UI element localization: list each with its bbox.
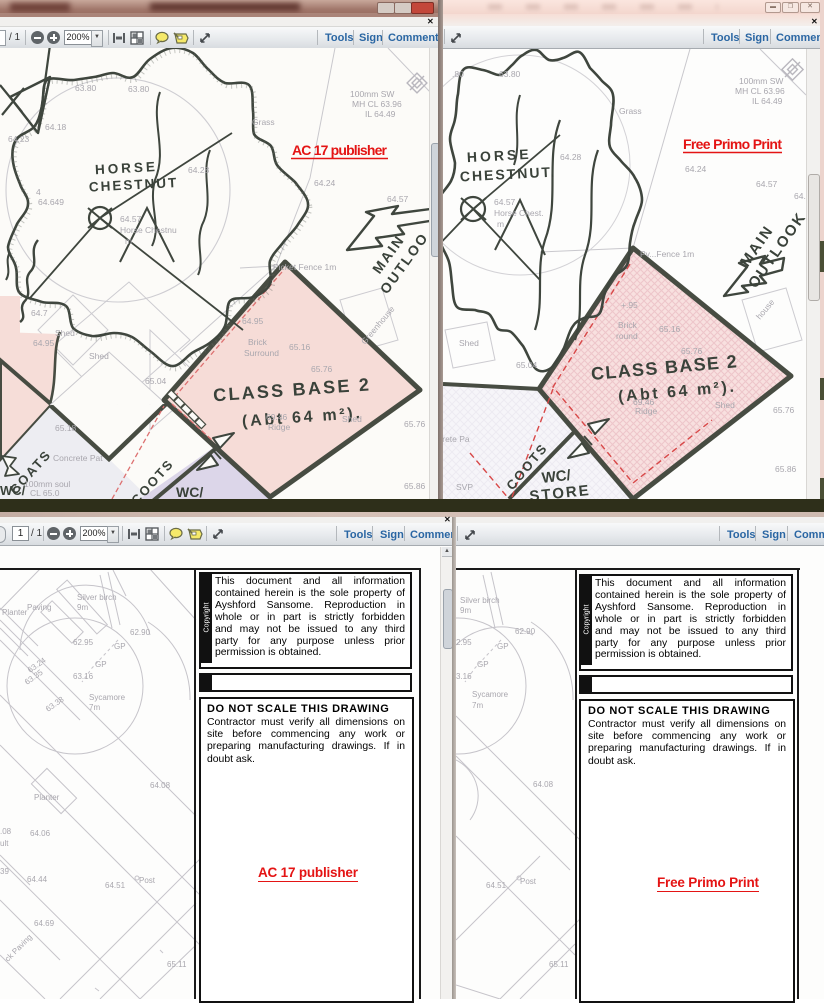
svg-text:65.18: 65.18	[55, 423, 77, 433]
svg-text:GP: GP	[477, 660, 489, 669]
svg-text:.80: .80	[452, 69, 464, 79]
svg-text:9m: 9m	[460, 606, 471, 615]
svg-text:+.95: +.95	[621, 300, 638, 310]
svg-text:GP: GP	[95, 660, 107, 669]
svg-text:WC/: WC/	[0, 483, 26, 498]
svg-text:65.04: 65.04	[516, 360, 538, 370]
svg-text:64.4: 64.4	[794, 191, 806, 201]
svg-text:64.57: 64.57	[756, 179, 778, 189]
svg-text:62.90: 62.90	[515, 627, 536, 636]
svg-text:Horse Chestnu: Horse Chestnu	[120, 225, 177, 235]
svg-text:64.51: 64.51	[486, 881, 507, 890]
svg-text:65.86: 65.86	[404, 481, 426, 491]
svg-text:64.28: 64.28	[560, 152, 582, 162]
svg-text:3.16: 3.16	[456, 672, 472, 681]
svg-text:MH CL 63.96: MH CL 63.96	[352, 99, 402, 109]
svg-text:65.76: 65.76	[404, 419, 426, 429]
svg-text:round: round	[616, 331, 638, 341]
svg-text:Brick: Brick	[618, 320, 638, 330]
svg-text:Sycamore: Sycamore	[89, 693, 126, 702]
svg-text:64.08: 64.08	[150, 781, 171, 790]
svg-text:Planter: Planter	[34, 793, 60, 802]
svg-text:GP: GP	[114, 642, 126, 651]
svg-text:7m: 7m	[472, 701, 483, 710]
svg-text:64.57: 64.57	[387, 194, 409, 204]
svg-text:100mm SW: 100mm SW	[739, 76, 783, 86]
svg-text:63.80: 63.80	[75, 83, 97, 93]
svg-text:Silver birch: Silver birch	[77, 593, 117, 602]
svg-text:64.44: 64.44	[27, 875, 48, 884]
svg-text:GP: GP	[497, 642, 509, 651]
svg-text:Pv...Fence 1m: Pv...Fence 1m	[640, 249, 694, 259]
svg-text:Surround: Surround	[244, 348, 279, 358]
svg-text:2.95: 2.95	[456, 638, 472, 647]
svg-text:64.18: 64.18	[45, 122, 67, 132]
svg-text:Shed: Shed	[55, 328, 75, 338]
svg-text:.08: .08	[0, 827, 12, 836]
svg-text:IL 64.49: IL 64.49	[365, 109, 396, 119]
svg-text:Ridge: Ridge	[268, 422, 290, 432]
svg-text:9m: 9m	[77, 603, 88, 612]
svg-text:100mm SW: 100mm SW	[350, 89, 394, 99]
svg-text:65.04: 65.04	[145, 376, 167, 386]
svg-text:65.16: 65.16	[289, 342, 311, 352]
svg-text:Planter: Planter	[2, 608, 28, 617]
svg-text:62.95: 62.95	[73, 638, 94, 647]
svg-text:MH CL 63.96: MH CL 63.96	[735, 86, 785, 96]
svg-text:64.57: 64.57	[494, 197, 516, 207]
svg-text:crete Pa: crete Pa	[443, 434, 470, 444]
svg-text:64.24: 64.24	[314, 178, 336, 188]
svg-text:64.649: 64.649	[38, 197, 64, 207]
svg-text:Paving: Paving	[27, 603, 51, 612]
svg-text:39: 39	[0, 867, 9, 876]
svg-text:ult: ult	[0, 839, 9, 848]
svg-text:Concrete Pat: Concrete Pat	[53, 453, 103, 463]
svg-text:63.80: 63.80	[128, 84, 150, 94]
svg-text:Sycamore: Sycamore	[472, 690, 509, 699]
svg-text:CL 65.0: CL 65.0	[30, 488, 60, 498]
svg-text:69.46: 69.46	[266, 412, 288, 422]
svg-text:64.69: 64.69	[34, 919, 55, 928]
svg-text:63.38: 63.38	[44, 694, 66, 713]
svg-text:64.95: 64.95	[33, 338, 55, 348]
svg-text:65.76: 65.76	[681, 346, 703, 356]
svg-text:4: 4	[36, 187, 41, 197]
svg-text:7m: 7m	[89, 703, 100, 712]
svg-text:64.7: 64.7	[31, 308, 48, 318]
svg-text:65.76: 65.76	[773, 405, 795, 415]
svg-text:65.16: 65.16	[659, 324, 681, 334]
svg-text:65.76: 65.76	[311, 364, 333, 374]
svg-text:SVP: SVP	[456, 482, 473, 492]
svg-text:m: m	[125, 236, 132, 246]
svg-text:64.23: 64.23	[8, 134, 30, 144]
svg-text:64.57: 64.57	[120, 214, 142, 224]
svg-text:AC 17 publisher: AC 17 publisher	[292, 142, 388, 158]
svg-text:Brick: Brick	[248, 337, 268, 347]
svg-text:64.08: 64.08	[533, 780, 554, 789]
svg-text:64.95: 64.95	[242, 316, 264, 326]
svg-text:Grass: Grass	[619, 106, 642, 116]
svg-text:63.16: 63.16	[73, 672, 94, 681]
svg-text:64.06: 64.06	[30, 829, 51, 838]
svg-text:64.51: 64.51	[105, 881, 126, 890]
svg-text:63.80: 63.80	[499, 69, 521, 79]
svg-text:64.28: 64.28	[188, 165, 210, 175]
svg-text:Shed: Shed	[89, 351, 109, 361]
svg-text:65.11: 65.11	[549, 960, 569, 969]
svg-text:Post: Post	[139, 876, 156, 885]
svg-text:Post: Post	[520, 877, 537, 886]
svg-text:ck Paving: ck Paving	[3, 933, 34, 964]
svg-text:WC/: WC/	[176, 484, 203, 499]
svg-text:65.11: 65.11	[167, 960, 187, 969]
svg-text:Free Primo Print: Free Primo Print	[683, 136, 782, 152]
svg-text:Grass: Grass	[252, 117, 275, 127]
svg-text:Shed: Shed	[715, 400, 735, 410]
svg-text:HORSE: HORSE	[466, 146, 532, 165]
svg-text:64.24: 64.24	[685, 164, 707, 174]
svg-text:65.86: 65.86	[775, 464, 797, 474]
svg-text:Silver birch: Silver birch	[460, 596, 500, 605]
svg-text:IL 64.49: IL 64.49	[752, 96, 783, 106]
svg-text:Ridge: Ridge	[635, 406, 657, 416]
svg-text:Picket Fence 1m: Picket Fence 1m	[273, 262, 336, 272]
svg-text:Horse Chest.: Horse Chest.	[494, 208, 544, 218]
svg-text:m: m	[497, 219, 504, 229]
svg-text:62.90: 62.90	[130, 628, 151, 637]
svg-text:Shed: Shed	[342, 414, 362, 424]
svg-text:Shed: Shed	[459, 338, 479, 348]
